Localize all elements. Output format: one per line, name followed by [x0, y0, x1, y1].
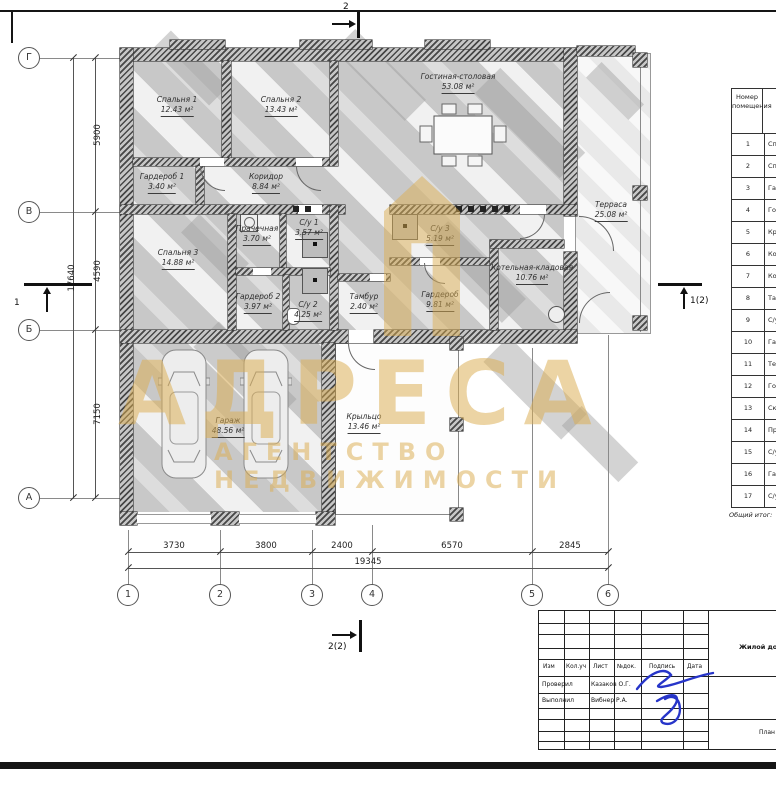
row-num: 8 [731, 288, 765, 310]
row-num: 2 [731, 156, 765, 178]
wall [330, 61, 338, 166]
row-num: 12 [731, 376, 765, 398]
col-list: Лист [593, 664, 608, 670]
room-name: Гараж [216, 416, 241, 425]
section-mark [357, 12, 360, 38]
axis-bubble-6: 6 [597, 584, 619, 606]
col-izm: Изм [543, 664, 555, 670]
axis-bubble-b: Б [18, 319, 40, 341]
row-num: 4 [731, 200, 765, 222]
axis-line [40, 58, 120, 59]
room-name: С/у 2 [298, 300, 317, 309]
room-area: 3.70 м² [243, 234, 271, 246]
room-name: С/у 3 [430, 224, 449, 233]
terrace-column [633, 316, 647, 330]
dining-table [418, 100, 508, 170]
table-row: 9С/у [731, 310, 776, 332]
pilaster [170, 40, 225, 49]
shower-box [392, 214, 418, 240]
axis-line [608, 335, 609, 586]
room-label-laundry: Прачечная 3.70 м² [236, 224, 278, 246]
axis-bubble-3: 3 [301, 584, 323, 606]
row-name: С/у [765, 310, 776, 332]
room-area: 8.84 м² [252, 182, 280, 194]
row-num: 13 [731, 398, 765, 420]
section-mark [658, 283, 702, 286]
wall [280, 214, 286, 268]
table-row: 7Кор [731, 266, 776, 288]
door-opening [200, 158, 224, 166]
door-opening [296, 158, 322, 166]
row-num: 7 [731, 266, 765, 288]
dim-value: 6570 [441, 541, 463, 551]
row-name: Ко [765, 244, 776, 266]
axis-line [40, 498, 120, 499]
room-area: 5.19 м² [426, 234, 454, 246]
title-block-line [614, 611, 615, 749]
section-arrow [350, 631, 357, 639]
row-num: 1 [731, 134, 765, 156]
room-label-garage: Гараж 48.56 м² [212, 416, 245, 438]
section-label-left: 1 [14, 298, 20, 308]
row-num: 16 [731, 464, 765, 486]
row-name: Тер [765, 354, 776, 376]
table-row: 6Ко [731, 244, 776, 266]
row-name: Пра [765, 420, 776, 442]
room-label-porch: Крыльцо 13.46 м² [347, 412, 382, 434]
porch-column [450, 508, 463, 521]
dimension-line [128, 552, 608, 553]
room-name: Спальня 1 [157, 95, 198, 104]
room-label-wardrobe2: Гардероб 2 3.97 м² [236, 292, 280, 314]
room-name: Гардероб [421, 290, 458, 299]
room-area: 14.88 м² [162, 258, 195, 270]
wall [490, 240, 564, 248]
title-block-line [539, 731, 708, 732]
section-mark [24, 283, 92, 286]
dimension-line [128, 568, 608, 569]
wall [322, 343, 335, 512]
porch-column [450, 337, 463, 350]
dim-value: 3800 [255, 541, 277, 551]
dim-value: 4590 [93, 251, 103, 291]
axis-line [312, 530, 313, 586]
wall [120, 48, 577, 61]
axis-line [220, 530, 221, 586]
wall [222, 61, 231, 158]
title-block: Изм Кол.уч Лист №док. Подпись Дата Прове… [538, 610, 776, 750]
signature [629, 661, 719, 731]
wall [564, 48, 577, 216]
table-row: 13Ск [731, 398, 776, 420]
room-label-boiler: Котельная-кладовая 10.76 м² [491, 263, 573, 285]
project-title: Жилой дом [739, 643, 776, 651]
room-label-bedroom1: Спальня 1 12.43 м² [157, 95, 198, 117]
row-name: Гар [765, 178, 776, 200]
vent-mark [480, 206, 486, 212]
vent-mark [468, 206, 474, 212]
room-area: 25.08 м² [595, 210, 628, 222]
drawing-sheet: Спальня 1 12.43 м² Спальня 2 13.43 м² Го… [0, 0, 776, 800]
col-koluch: Кол.уч [566, 664, 586, 670]
sheet-top-border [0, 10, 776, 12]
row-num: 6 [731, 244, 765, 266]
room-label-bath1: С/у 1 3.57 м² [295, 218, 323, 240]
dim-total: 19345 [354, 557, 381, 567]
axis-bubble-5: 5 [521, 584, 543, 606]
axis-line [128, 530, 129, 586]
table-footer-total: Общий итог: [729, 511, 772, 519]
section-mark [46, 293, 48, 312]
axis-line [40, 330, 120, 331]
vent-mark [305, 206, 311, 212]
room-label-terrace: Терраса 25.08 м² [595, 200, 628, 222]
pilaster [300, 40, 372, 49]
title-block-line [539, 634, 708, 635]
row-num: 11 [731, 354, 765, 376]
author-name: Вибнер Р.А. [591, 697, 628, 704]
room-label-corridor: Коридор 8.84 м² [249, 172, 283, 194]
table-row: 10Гар [731, 332, 776, 354]
author-label: Выполнил [542, 697, 574, 704]
wall [316, 512, 335, 525]
table-row: 2Сп [731, 156, 776, 178]
section-label-bottom: 2(2) [328, 642, 346, 652]
axis-bubble-1: 1 [117, 584, 139, 606]
title-block-line [539, 623, 708, 624]
wall [120, 48, 133, 525]
row-num: 5 [731, 222, 765, 244]
axis-bubble-4: 4 [361, 584, 383, 606]
dim-value: 7150 [93, 394, 103, 434]
room-name: Котельная-кладовая [491, 263, 573, 272]
row-name: С/у [765, 442, 776, 464]
room-area: 2.40 м² [350, 302, 378, 314]
section-arrow [349, 20, 356, 28]
garage-door-opening [239, 514, 316, 524]
plan-note: План на [759, 729, 776, 736]
dim-value: 3730 [163, 541, 185, 551]
room-name: Крыльцо [347, 412, 382, 421]
title-block-line [564, 611, 565, 749]
table-row: 11Тер [731, 354, 776, 376]
row-num: 14 [731, 420, 765, 442]
row-name: Гар [765, 332, 776, 354]
door-opening [370, 274, 386, 281]
table-row: 14Пра [731, 420, 776, 442]
row-num: 10 [731, 332, 765, 354]
wall [120, 330, 348, 343]
section-arrow [43, 287, 51, 294]
section-mark [359, 620, 362, 652]
table-header-name [763, 88, 776, 134]
title-block-line [539, 659, 708, 660]
wall [330, 205, 338, 330]
title-block-line [539, 648, 708, 649]
room-label-bath3: С/у 3 5.19 м² [426, 224, 454, 246]
wall [120, 512, 137, 525]
terrace-column [633, 53, 647, 67]
room-name: Спальня 3 [158, 248, 199, 257]
dim-value: 5900 [93, 115, 103, 155]
wall [490, 240, 498, 330]
checked-name: Казаков О.Г. [591, 681, 631, 688]
room-label-bedroom3: Спальня 3 14.88 м² [158, 248, 199, 270]
table-row: 5Кр [731, 222, 776, 244]
row-name: Гос [765, 376, 776, 398]
dim-value: 2400 [331, 541, 353, 551]
table-row: 4Гос [731, 200, 776, 222]
axis-bubble-g: Г [18, 47, 40, 69]
room-label-vestibule: Тамбур 2.40 м² [350, 292, 379, 314]
room-area: 13.46 м² [348, 422, 381, 434]
room-name: Терраса [595, 200, 627, 209]
room-label-wardrobe3: Гардероб 9.81 м² [421, 290, 458, 312]
garage-door-opening [137, 514, 211, 524]
row-name: Гос [765, 200, 776, 222]
checked-label: Проверил [542, 681, 573, 688]
table-row: 16Гар [731, 464, 776, 486]
row-num: 15 [731, 442, 765, 464]
vent-mark [293, 206, 299, 212]
row-name: Сп [765, 156, 776, 178]
dim-value: 2845 [559, 541, 581, 551]
axis-bubble-a: А [18, 487, 40, 509]
terrace-column [633, 186, 647, 200]
row-name: Сп [765, 134, 776, 156]
row-name: Гар [765, 464, 776, 486]
room-name: Гостиная-столовая [421, 72, 496, 81]
row-name: Кр [765, 222, 776, 244]
row-name: Кор [765, 266, 776, 288]
sheet-bottom-border [0, 762, 776, 769]
room-area: 48.56 м² [212, 426, 245, 438]
table-row: 15С/у [731, 442, 776, 464]
room-area: 3.40 м² [148, 182, 176, 194]
section-mark [683, 293, 685, 309]
room-label-bedroom2: Спальня 2 13.43 м² [261, 95, 302, 117]
row-name: С/у [765, 486, 776, 508]
table-row: 12Гос [731, 376, 776, 398]
axis-line [40, 212, 120, 213]
boiler [548, 306, 565, 323]
room-schedule-table: Номер помещения 1Сп 2Сп 3Гар 4Гос 5Кр 6К… [731, 88, 776, 508]
wall [374, 330, 577, 343]
room-area: 10.76 м² [516, 273, 549, 285]
row-num: 17 [731, 486, 765, 508]
table-row: 1Сп [731, 134, 776, 156]
title-block-line [539, 741, 708, 742]
sheet-left-border [11, 10, 13, 43]
room-area: 12.43 м² [161, 105, 194, 117]
row-name: Там [765, 288, 776, 310]
room-area: 13.43 м² [265, 105, 298, 117]
wall [211, 512, 239, 525]
door-opening [520, 205, 546, 214]
room-area: 4.25 м² [294, 310, 322, 322]
table-row: 17С/у [731, 486, 776, 508]
shower-box [302, 268, 328, 294]
car [240, 348, 292, 480]
row-num: 9 [731, 310, 765, 332]
room-label-bath2: С/у 2 4.25 м² [294, 300, 322, 322]
table-header-row: Номер помещения [731, 88, 776, 134]
table-row: 8Там [731, 288, 776, 310]
room-name: С/у 1 [299, 218, 318, 227]
dim-total: 17640 [67, 256, 77, 300]
car [158, 348, 210, 480]
vent-mark [456, 206, 462, 212]
section-arrow [680, 287, 688, 294]
pilaster [577, 46, 635, 56]
title-block-line [589, 611, 590, 749]
room-area: 3.97 м² [244, 302, 272, 314]
axis-line [372, 525, 373, 586]
porch-column [450, 418, 463, 431]
room-name: Тамбур [350, 292, 379, 301]
vent-mark [492, 206, 498, 212]
section-label-right: 1(2) [690, 296, 708, 306]
shade-band [562, 406, 638, 482]
room-name: Гардероб 2 [236, 292, 280, 301]
axis-bubble-2: 2 [209, 584, 231, 606]
room-name: Гардероб 1 [140, 172, 184, 181]
table-row: 3Гар [731, 178, 776, 200]
section-label-top: 2 [343, 2, 349, 12]
room-area: 53.08 м² [442, 82, 475, 94]
row-name: Ск [765, 398, 776, 420]
room-area: 9.81 м² [426, 300, 454, 312]
room-name: Прачечная [236, 224, 278, 233]
room-label-living: Гостиная-столовая 53.08 м² [421, 72, 496, 94]
room-name: Коридор [249, 172, 283, 181]
room-label-wardrobe1: Гардероб 1 3.40 м² [140, 172, 184, 194]
table-header-number: Номер помещения [731, 88, 763, 134]
pilaster [425, 40, 490, 49]
room-name: Спальня 2 [261, 95, 302, 104]
row-num: 3 [731, 178, 765, 200]
room-area: 3.57 м² [295, 228, 323, 240]
door-opening [253, 268, 271, 275]
axis-bubble-v: В [18, 201, 40, 223]
vent-mark [504, 206, 510, 212]
